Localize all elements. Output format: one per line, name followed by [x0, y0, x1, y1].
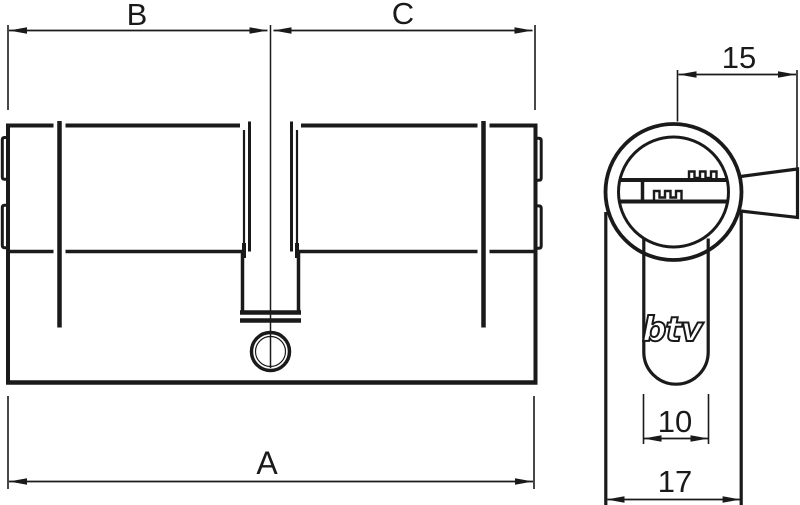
dimension-15: 15: [678, 40, 798, 168]
arrowhead-right: [691, 435, 709, 442]
extension-lines: [678, 70, 798, 168]
arrowhead-right: [723, 496, 741, 503]
lobe-outer-sides: [606, 212, 741, 505]
head-outer-circle: [606, 124, 742, 260]
dimension-label-10: 10: [658, 404, 692, 439]
dimension-label-15: 15: [722, 40, 756, 75]
dimension-label-a: A: [256, 445, 278, 481]
arrowhead-left: [9, 478, 27, 485]
dimension-17: 17: [607, 464, 741, 503]
head-inner-circle: [619, 137, 729, 247]
arrowhead-right: [515, 478, 533, 485]
arrowhead-right: [778, 71, 796, 78]
arrowhead-left: [607, 496, 625, 503]
dimension-c: C: [274, 0, 536, 110]
key-teeth-bottom: [654, 191, 682, 200]
technical-drawing-canvas: B C A btv: [0, 0, 800, 505]
front-view-cylinder-profile: btv: [606, 124, 798, 505]
arrowhead-left: [274, 27, 292, 34]
btv-logo: btv: [642, 310, 705, 350]
dimension-10: 10: [644, 394, 709, 444]
dimension-label-c: C: [392, 0, 414, 31]
arrowhead-left: [679, 71, 697, 78]
dimension-a: A: [8, 396, 534, 489]
dimension-b: B: [8, 0, 268, 110]
arrowhead-right: [250, 27, 268, 34]
arrowhead-right: [515, 27, 533, 34]
side-view-cylinder-body: [2, 25, 541, 385]
dimension-label-b: B: [127, 0, 148, 32]
key-bow: [741, 169, 798, 218]
cylinder-drawing: B C A btv: [0, 0, 800, 505]
dimension-label-17: 17: [658, 464, 692, 499]
arrowhead-left: [9, 27, 27, 34]
